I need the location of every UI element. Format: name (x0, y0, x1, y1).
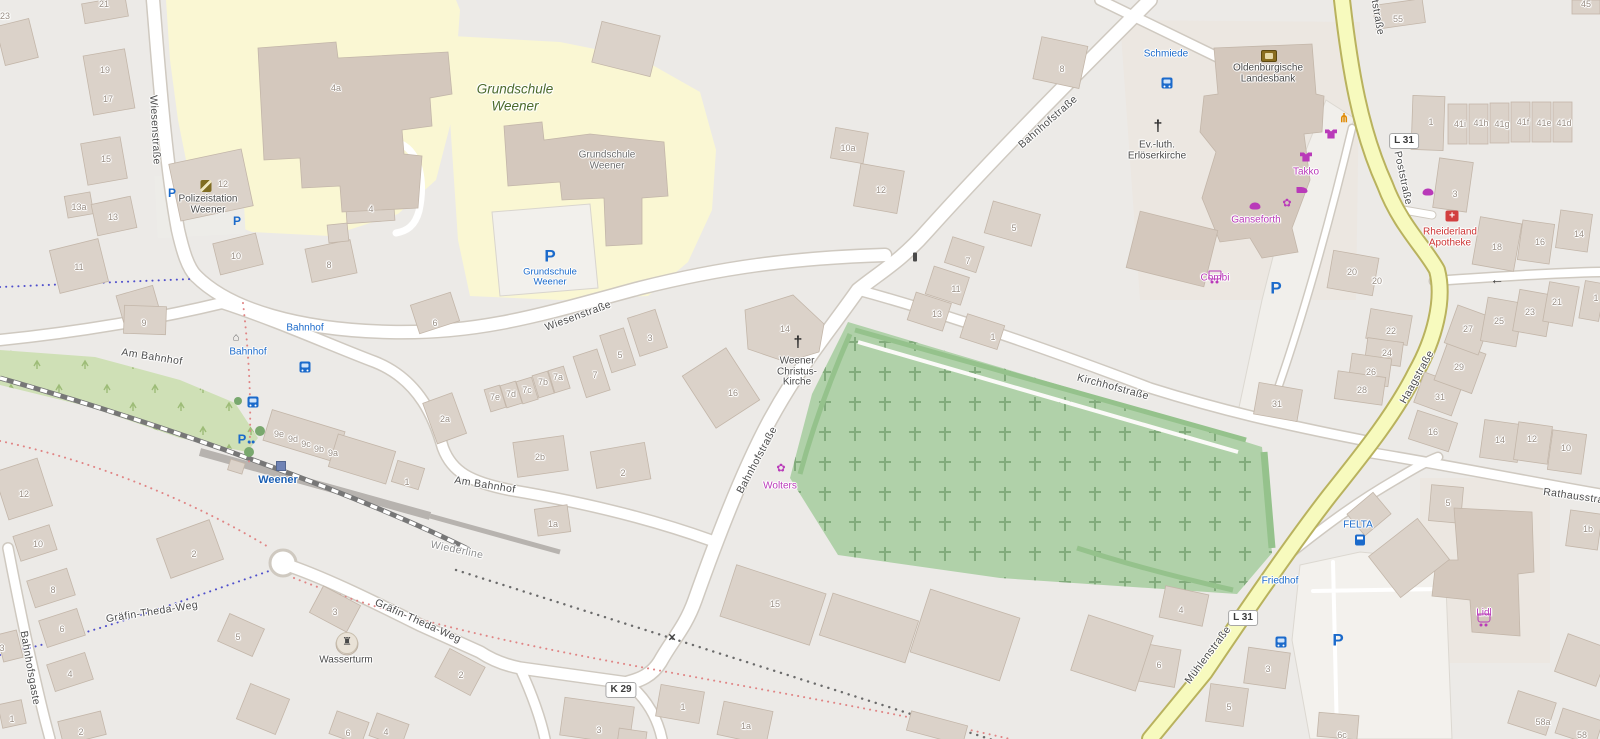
poi-weener-station: Weener (258, 474, 298, 486)
route-badge: L 31 (1389, 133, 1419, 149)
bus-icon (248, 397, 259, 408)
house-number: 6 (432, 318, 437, 328)
poi-bahnhof-stop-upper: Bahnhof (286, 323, 323, 334)
poi-oldenburgische-landesbank: Oldenburgische (1233, 63, 1303, 74)
bus-icon (300, 362, 311, 373)
street-label: Wiesenstraße (147, 95, 163, 165)
house-number: 3 (1452, 189, 1457, 199)
house-number: 7d (506, 389, 516, 399)
house-number: 12 (876, 185, 886, 195)
poi-weener-christus-kirche: Kirche (783, 377, 811, 388)
poi-wolters: Wolters (763, 481, 797, 492)
poi-grundschule-weener-area: Grundschule (477, 82, 554, 97)
house-number: 41e (1536, 118, 1551, 128)
poi-rheiderland-apotheke: Rheiderland (1423, 227, 1477, 238)
house-number: 16 (1535, 237, 1545, 247)
flower-icon: ✿ (1282, 199, 1291, 210)
house-number: 1 (9, 714, 14, 724)
house-number: 28 (1357, 385, 1367, 395)
house-number: 41h (1473, 118, 1488, 128)
house-number: 3 (596, 725, 601, 735)
pharmacy-icon: + (1446, 211, 1459, 222)
house-number: 11 (74, 262, 83, 272)
house-number: 9 (141, 318, 146, 328)
house-number: 55 (1393, 14, 1403, 24)
house-number: 4a (331, 83, 341, 93)
street-label: Wiederline (430, 539, 485, 562)
house-number: 29 (1454, 362, 1464, 372)
house-number: 10 (1561, 443, 1571, 453)
street-label: Bahnhofstraße (1016, 93, 1080, 151)
bus-icon (1276, 637, 1287, 648)
house-number: 13 (932, 309, 942, 319)
house-number: 7b (538, 377, 548, 387)
house-number: 11 (951, 284, 960, 294)
house-number: 8 (326, 260, 331, 270)
street-label: Bahnhofsgaste (18, 630, 43, 706)
street-label: Am Bahnhof (454, 474, 517, 496)
house-number: 4 (1178, 605, 1183, 615)
hut-icon: ⌂ (233, 333, 240, 344)
house-number: 41d (1556, 118, 1571, 128)
house-number: 15 (101, 154, 111, 164)
house-number: 12 (19, 489, 29, 499)
shirt-icon (1325, 130, 1337, 139)
house-number: 4 (368, 204, 373, 214)
parking-icon: P (168, 187, 176, 199)
street-label: Gräfin-Theda-Weg (373, 597, 463, 646)
house-number: 14 (1495, 435, 1505, 445)
house-number: 12 (1527, 434, 1537, 444)
police-icon (201, 180, 212, 192)
house-number: 14 (780, 324, 790, 334)
house-number: 1 (680, 702, 685, 712)
poi-ev-luth-erloeserkirche: Erlöserkirche (1128, 150, 1186, 161)
house-number: 14 (1574, 229, 1584, 239)
poi-felta: FELTA (1343, 520, 1373, 531)
house-number: 9d (288, 434, 298, 444)
house-number: 1a (741, 721, 751, 731)
street-label: Gräfin-Theda-Weg (105, 599, 199, 625)
poi-polizeistation-weener: Polizeistation (179, 194, 238, 205)
parking-icon: P (238, 433, 255, 446)
flower-icon: ✿ (776, 464, 785, 475)
house-number: 10 (33, 539, 43, 549)
house-number: 3 (1265, 664, 1270, 674)
signal-icon (913, 253, 917, 262)
house-number: 22 (1386, 326, 1396, 336)
house-number: 24 (1382, 348, 1392, 358)
street-label: Kirchhofstraße (1076, 372, 1150, 403)
bike-dots-icon (247, 441, 250, 444)
house-number: 31 (1272, 399, 1282, 409)
house-number: 5 (1226, 702, 1231, 712)
house-number: 58 (1577, 730, 1587, 739)
house-number: 23 (0, 11, 10, 21)
house-number: 45 (1581, 0, 1591, 9)
house-number: 27 (1463, 324, 1473, 334)
poi-bahnhof-stop-lower: Bahnhof (229, 347, 266, 358)
house-number: 1a (548, 519, 558, 529)
house-number: 20 (1347, 267, 1357, 277)
poi-friedhof-stop: Friedhof (1262, 576, 1299, 587)
restaurant-icon: ⋔ (1339, 112, 1349, 124)
street-label: Poststraße (1365, 0, 1386, 36)
poi-ganseforth: Ganseforth (1231, 215, 1280, 226)
house-number: 25 (1494, 316, 1504, 326)
house-number: 5 (1445, 498, 1450, 508)
poi-grundschule-weener-building: Grundschule (579, 150, 636, 161)
fuel-icon (1355, 535, 1365, 546)
bus-icon (1162, 78, 1173, 89)
house-number: 7 (965, 256, 970, 266)
route-badge: L 31 (1228, 610, 1258, 626)
poi-oldenburgische-landesbank: Landesbank (1241, 73, 1296, 84)
parking-label: Weener (533, 277, 566, 288)
street-label: Poststraße (1391, 150, 1414, 206)
parking-icon: P (544, 248, 555, 265)
house-number: 6 (345, 728, 350, 738)
house-number: 19 (100, 65, 110, 75)
parking-icon: P (233, 215, 241, 227)
poi-rheiderland-apotheke: Apotheke (1429, 237, 1471, 248)
house-number: 1b (1583, 524, 1593, 534)
house-number: 23 (1525, 307, 1535, 317)
cross-icon: † (1154, 119, 1163, 135)
house-number: 18 (1492, 242, 1502, 252)
bread-icon (1250, 203, 1261, 210)
poi-wasserturm: Wasserturm (319, 655, 373, 666)
house-number: 21 (99, 0, 109, 9)
street-label: Am Bahnhof (121, 346, 184, 368)
house-number: 6 (1156, 660, 1161, 670)
house-number: 6 (59, 624, 64, 634)
xing-icon: × (668, 631, 676, 644)
poi-ev-luth-erloeserkirche: Ev.-luth. (1139, 140, 1175, 151)
house-number: 7a (553, 372, 563, 382)
house-number: 41f (1517, 117, 1530, 127)
street-label: Wiesenstraße (543, 298, 612, 333)
map-canvas[interactable]: WiesenstraßeWiesenstraßeBahnhofstraßeBah… (0, 0, 1600, 739)
poi-takko: Takko (1293, 167, 1319, 178)
house-number: 1 (990, 332, 995, 342)
house-number: 3 (332, 607, 337, 617)
map-labels-layer: WiesenstraßeWiesenstraßeBahnhofstraßeBah… (0, 0, 1600, 739)
street-label: Haagstraße (1397, 348, 1436, 405)
house-number: 5 (1011, 223, 1016, 233)
house-number: 9a (328, 448, 338, 458)
shoes-icon (1297, 187, 1308, 193)
house-number: 58a (1535, 717, 1550, 727)
bread-icon (1423, 189, 1434, 196)
house-number: 1 (1593, 293, 1598, 303)
house-number: 4 (67, 669, 72, 679)
house-number: 2 (458, 670, 463, 680)
arrow-left-icon: ← (1490, 272, 1504, 286)
poi-grundschule-weener-building: Weener (590, 161, 625, 172)
cart-icon (1478, 614, 1491, 623)
poi-schmiede-stop: Schmiede (1144, 49, 1188, 60)
poi-weener-christus-kirche: Weener (780, 356, 815, 367)
house-number: 16 (1428, 427, 1438, 437)
house-number: 2 (78, 727, 83, 737)
house-number: 31 (1435, 392, 1445, 402)
street-label: Rathausstraße (1542, 486, 1600, 508)
house-number: 7e (490, 392, 500, 402)
house-number: 8 (1059, 64, 1064, 74)
house-number: 13a (71, 202, 86, 212)
house-number: 6c (1337, 730, 1347, 739)
house-number: 1 (404, 477, 409, 487)
parking-icon: P (1270, 280, 1281, 297)
bank-icon (1261, 50, 1277, 62)
house-number: 5 (617, 350, 622, 360)
house-number: 13 (108, 212, 118, 222)
house-number: 10 (231, 251, 241, 261)
house-number: 15 (770, 599, 780, 609)
house-number: 21 (1552, 297, 1562, 307)
house-number: 10a (840, 143, 855, 153)
house-number: 9c (301, 439, 311, 449)
shirt-icon (1300, 153, 1312, 162)
house-number: 26 (1366, 367, 1376, 377)
house-number: 17 (103, 94, 113, 104)
house-number: 12 (218, 179, 228, 189)
house-number: 41i (1454, 119, 1466, 129)
house-number: 41g (1494, 119, 1509, 129)
house-number: 16 (728, 388, 738, 398)
house-number: 3 (0, 643, 5, 653)
rail-icon (276, 461, 286, 471)
house-number: 9b (314, 444, 324, 454)
house-number: 7c (522, 385, 532, 395)
house-number: 7 (592, 370, 597, 380)
poi-weener-christus-kirche: Christus- (777, 366, 817, 377)
poi-polizeistation-weener: Weener (191, 204, 226, 215)
house-number: 3 (647, 333, 652, 343)
house-number: 2 (620, 468, 625, 478)
house-number: 20 (1372, 276, 1382, 286)
poi-grundschule-weener-area: Weener (491, 99, 538, 114)
house-number: 1 (1428, 117, 1433, 127)
house-number: 2 (191, 549, 196, 559)
house-number: 5 (235, 632, 240, 642)
house-number: 2a (440, 414, 450, 424)
tower-icon: ♜ (336, 632, 358, 654)
cart-icon (1209, 271, 1222, 280)
parking-icon: P (1332, 632, 1343, 649)
cross-icon: † (794, 335, 803, 351)
street-label: Mühlenstraße (1182, 624, 1233, 686)
house-number: 4 (383, 727, 388, 737)
house-number: 9e (274, 429, 284, 439)
house-number: 8 (50, 585, 55, 595)
house-number: 2b (535, 452, 545, 462)
route-badge: K 29 (605, 682, 636, 698)
